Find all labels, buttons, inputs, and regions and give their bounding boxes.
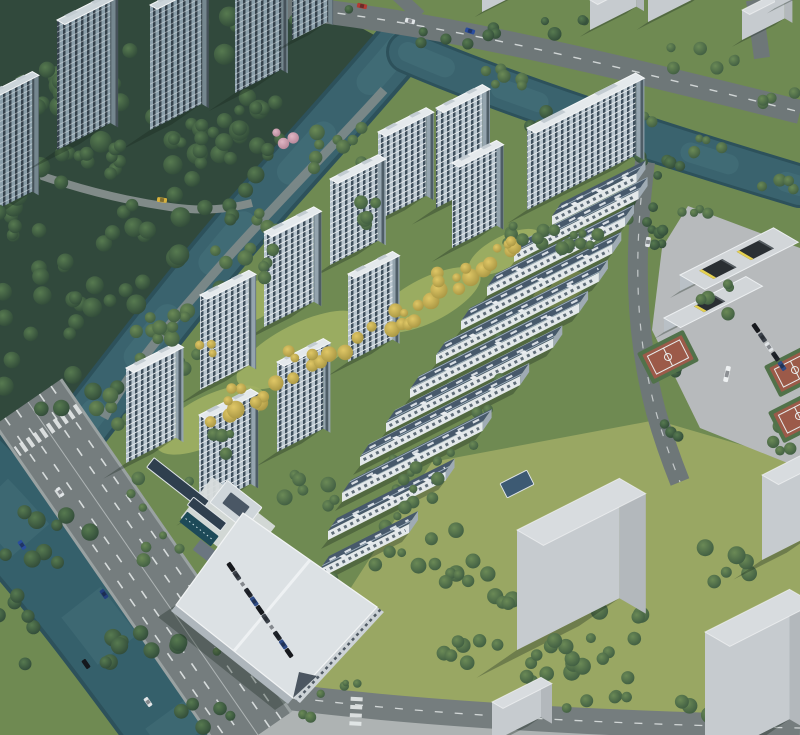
- masterplan-render-canvas: [0, 0, 800, 735]
- tree: [180, 312, 191, 323]
- tree: [236, 383, 247, 394]
- tree: [721, 567, 732, 578]
- tree: [24, 327, 39, 342]
- tree: [480, 566, 495, 581]
- tree: [168, 133, 180, 145]
- tree: [250, 396, 262, 408]
- tree: [89, 401, 104, 416]
- tree: [400, 309, 408, 317]
- tree: [51, 556, 64, 569]
- tree: [32, 223, 47, 238]
- tree: [675, 161, 685, 171]
- tree: [278, 138, 289, 149]
- tree: [321, 346, 337, 362]
- tree: [502, 597, 515, 610]
- tree: [397, 548, 406, 557]
- tree: [721, 307, 734, 320]
- tree: [439, 575, 453, 589]
- tree: [114, 140, 126, 152]
- tree: [195, 719, 211, 735]
- tree: [491, 80, 500, 89]
- tree: [104, 294, 117, 307]
- tree: [415, 37, 426, 48]
- tree: [139, 222, 156, 239]
- tree: [383, 546, 395, 558]
- tree: [10, 588, 24, 602]
- tree: [247, 166, 264, 183]
- tree: [516, 233, 529, 246]
- tree: [555, 241, 569, 255]
- tree: [578, 230, 586, 238]
- tree: [586, 240, 595, 249]
- tree: [466, 554, 481, 569]
- tree: [673, 431, 684, 442]
- tree: [775, 446, 785, 456]
- tree: [104, 167, 117, 180]
- tree: [591, 228, 604, 241]
- tree: [224, 152, 237, 165]
- tree: [642, 217, 652, 227]
- tree: [432, 275, 444, 287]
- tree: [398, 501, 412, 515]
- tree: [757, 181, 767, 191]
- tree: [141, 542, 152, 553]
- tree: [562, 703, 572, 713]
- tree: [215, 133, 233, 151]
- tree: [272, 129, 280, 137]
- tree: [237, 250, 253, 266]
- tree: [653, 171, 662, 180]
- tree: [621, 692, 632, 703]
- tree: [586, 633, 596, 643]
- tree: [660, 419, 670, 429]
- tree: [609, 691, 621, 703]
- tree: [393, 512, 401, 520]
- tree: [169, 244, 190, 265]
- tree: [174, 544, 184, 554]
- tree: [667, 62, 680, 75]
- tree: [152, 333, 163, 344]
- tree: [225, 711, 235, 721]
- tree: [657, 225, 668, 236]
- tree: [288, 132, 299, 143]
- tree: [481, 66, 491, 76]
- tree: [409, 485, 417, 493]
- tree: [197, 200, 212, 215]
- tree: [427, 492, 439, 504]
- tree: [460, 263, 471, 274]
- tree: [21, 610, 34, 623]
- tree: [541, 17, 549, 25]
- tree: [520, 670, 534, 684]
- tree: [664, 156, 676, 168]
- tree: [356, 122, 368, 134]
- tree: [419, 27, 428, 36]
- tree: [702, 208, 713, 219]
- tree: [184, 171, 200, 187]
- tree: [352, 332, 364, 344]
- tree: [453, 283, 465, 295]
- tree: [32, 268, 49, 285]
- tree: [388, 303, 402, 317]
- tree: [398, 474, 410, 486]
- tree: [223, 396, 232, 405]
- tree: [433, 458, 441, 466]
- tree: [195, 157, 207, 169]
- tree: [648, 202, 658, 212]
- tree: [226, 383, 237, 394]
- tree: [675, 695, 689, 709]
- tree: [119, 283, 133, 297]
- tree: [267, 244, 280, 257]
- tree: [305, 712, 316, 723]
- tree: [220, 448, 232, 460]
- tree: [249, 101, 262, 114]
- tree: [309, 151, 322, 164]
- tree: [33, 286, 51, 304]
- tree: [569, 231, 578, 240]
- tree: [17, 505, 31, 519]
- tree: [238, 183, 253, 198]
- tree: [677, 207, 686, 216]
- tree: [258, 261, 269, 272]
- tree: [649, 240, 660, 251]
- tree: [224, 214, 236, 226]
- tree: [410, 461, 423, 474]
- tree: [729, 55, 740, 66]
- tree: [57, 253, 74, 270]
- tree: [454, 570, 464, 580]
- tree: [697, 539, 714, 556]
- tree: [758, 95, 769, 106]
- tree: [167, 321, 178, 332]
- tree: [159, 531, 167, 539]
- tree: [710, 61, 723, 74]
- tree: [254, 208, 265, 219]
- tree: [195, 341, 204, 350]
- tree: [469, 441, 478, 450]
- tree: [767, 436, 779, 448]
- tree: [370, 198, 381, 209]
- tree: [580, 694, 593, 707]
- tree: [193, 144, 208, 159]
- tree: [214, 44, 235, 65]
- tree: [497, 70, 510, 83]
- tree: [784, 442, 796, 454]
- tree: [482, 29, 494, 41]
- tree: [452, 273, 461, 282]
- tree: [234, 105, 244, 115]
- tree: [632, 610, 645, 623]
- tree: [126, 294, 146, 314]
- tree: [445, 649, 458, 662]
- tree: [429, 558, 442, 571]
- tree: [298, 485, 309, 496]
- tree: [336, 140, 350, 154]
- tree: [80, 147, 94, 161]
- tree: [186, 698, 199, 711]
- tree: [145, 312, 156, 323]
- tree: [19, 658, 32, 671]
- tree: [8, 219, 22, 233]
- tree: [207, 340, 216, 349]
- tree: [4, 352, 21, 369]
- tree: [716, 142, 727, 153]
- tree: [360, 211, 373, 224]
- tree: [343, 680, 349, 686]
- tree: [111, 637, 128, 654]
- tree: [69, 291, 82, 304]
- tree: [126, 489, 135, 498]
- tree: [308, 162, 320, 174]
- tree: [64, 366, 82, 384]
- tree: [130, 325, 143, 338]
- tree: [58, 507, 75, 524]
- tree: [337, 345, 353, 361]
- tree: [493, 244, 502, 253]
- tree: [84, 383, 102, 401]
- tree: [509, 222, 518, 231]
- tree: [287, 372, 299, 384]
- tree: [292, 473, 306, 487]
- tree: [81, 523, 98, 540]
- tree: [133, 625, 148, 640]
- tree: [621, 671, 634, 684]
- tree: [517, 81, 527, 91]
- tree: [407, 314, 421, 328]
- tree: [132, 472, 146, 486]
- tree: [329, 495, 339, 505]
- tree: [688, 146, 700, 158]
- tree: [506, 236, 516, 246]
- tree: [547, 633, 562, 648]
- tree: [63, 327, 76, 340]
- tree: [690, 209, 698, 217]
- tree: [210, 245, 221, 256]
- tree: [34, 402, 49, 417]
- tree: [693, 42, 707, 56]
- tree: [195, 119, 208, 132]
- tree: [174, 704, 189, 719]
- tree: [100, 656, 112, 668]
- tree: [578, 15, 588, 25]
- tree: [492, 639, 504, 651]
- tree: [531, 649, 543, 661]
- aerial-rendering: [0, 0, 800, 735]
- tree: [167, 309, 180, 322]
- tree: [137, 553, 151, 567]
- tree: [320, 477, 336, 493]
- tree: [86, 276, 104, 294]
- tree: [460, 655, 475, 670]
- tree: [126, 199, 139, 212]
- tree: [440, 34, 451, 45]
- tree: [462, 38, 473, 49]
- tree: [277, 489, 293, 505]
- tree: [143, 642, 159, 658]
- tree: [425, 532, 438, 545]
- tree: [268, 375, 283, 390]
- tree: [473, 634, 486, 647]
- tree: [354, 195, 368, 209]
- tree: [171, 207, 191, 227]
- tree: [209, 349, 217, 357]
- tree: [702, 136, 710, 144]
- tree: [122, 43, 137, 58]
- tree: [53, 400, 70, 417]
- tree: [784, 176, 795, 187]
- tree: [135, 275, 150, 290]
- tree: [789, 87, 800, 99]
- tree: [205, 416, 216, 427]
- tree: [666, 43, 675, 52]
- tree: [102, 388, 118, 404]
- tree: [258, 271, 271, 284]
- tree: [194, 131, 208, 145]
- tree: [548, 27, 562, 41]
- tree: [628, 632, 642, 646]
- tree: [111, 417, 125, 431]
- tree: [24, 550, 41, 567]
- tree: [164, 331, 180, 347]
- tree: [723, 279, 733, 289]
- tree: [695, 135, 703, 143]
- tree: [105, 225, 120, 240]
- tree: [39, 62, 55, 78]
- tree: [314, 139, 324, 149]
- tree: [411, 558, 427, 574]
- tree: [369, 558, 383, 572]
- tree: [452, 635, 465, 648]
- tree: [447, 449, 455, 457]
- tree: [367, 322, 377, 332]
- tree: [219, 256, 232, 269]
- tree: [163, 155, 182, 174]
- tree: [213, 702, 227, 716]
- tree: [139, 503, 147, 511]
- tree: [575, 238, 587, 250]
- tree: [728, 546, 746, 564]
- tree: [431, 472, 445, 486]
- tree: [413, 300, 424, 311]
- tree: [707, 575, 721, 589]
- tree: [226, 430, 234, 438]
- tree: [167, 187, 183, 203]
- tree: [217, 113, 232, 128]
- tree: [268, 95, 282, 109]
- tree: [54, 176, 68, 190]
- tree: [448, 522, 464, 538]
- tree: [532, 232, 544, 244]
- tree: [696, 294, 707, 305]
- tree: [307, 349, 318, 360]
- tree: [290, 354, 299, 363]
- tree: [345, 5, 354, 14]
- tree: [232, 120, 247, 135]
- tree: [483, 257, 497, 271]
- tree: [208, 127, 219, 138]
- tree: [597, 653, 609, 665]
- tree: [353, 679, 362, 688]
- tree: [309, 125, 325, 141]
- tree: [261, 143, 274, 156]
- tree: [82, 298, 102, 318]
- tree: [317, 690, 325, 698]
- tree: [152, 320, 167, 335]
- tree: [548, 224, 560, 236]
